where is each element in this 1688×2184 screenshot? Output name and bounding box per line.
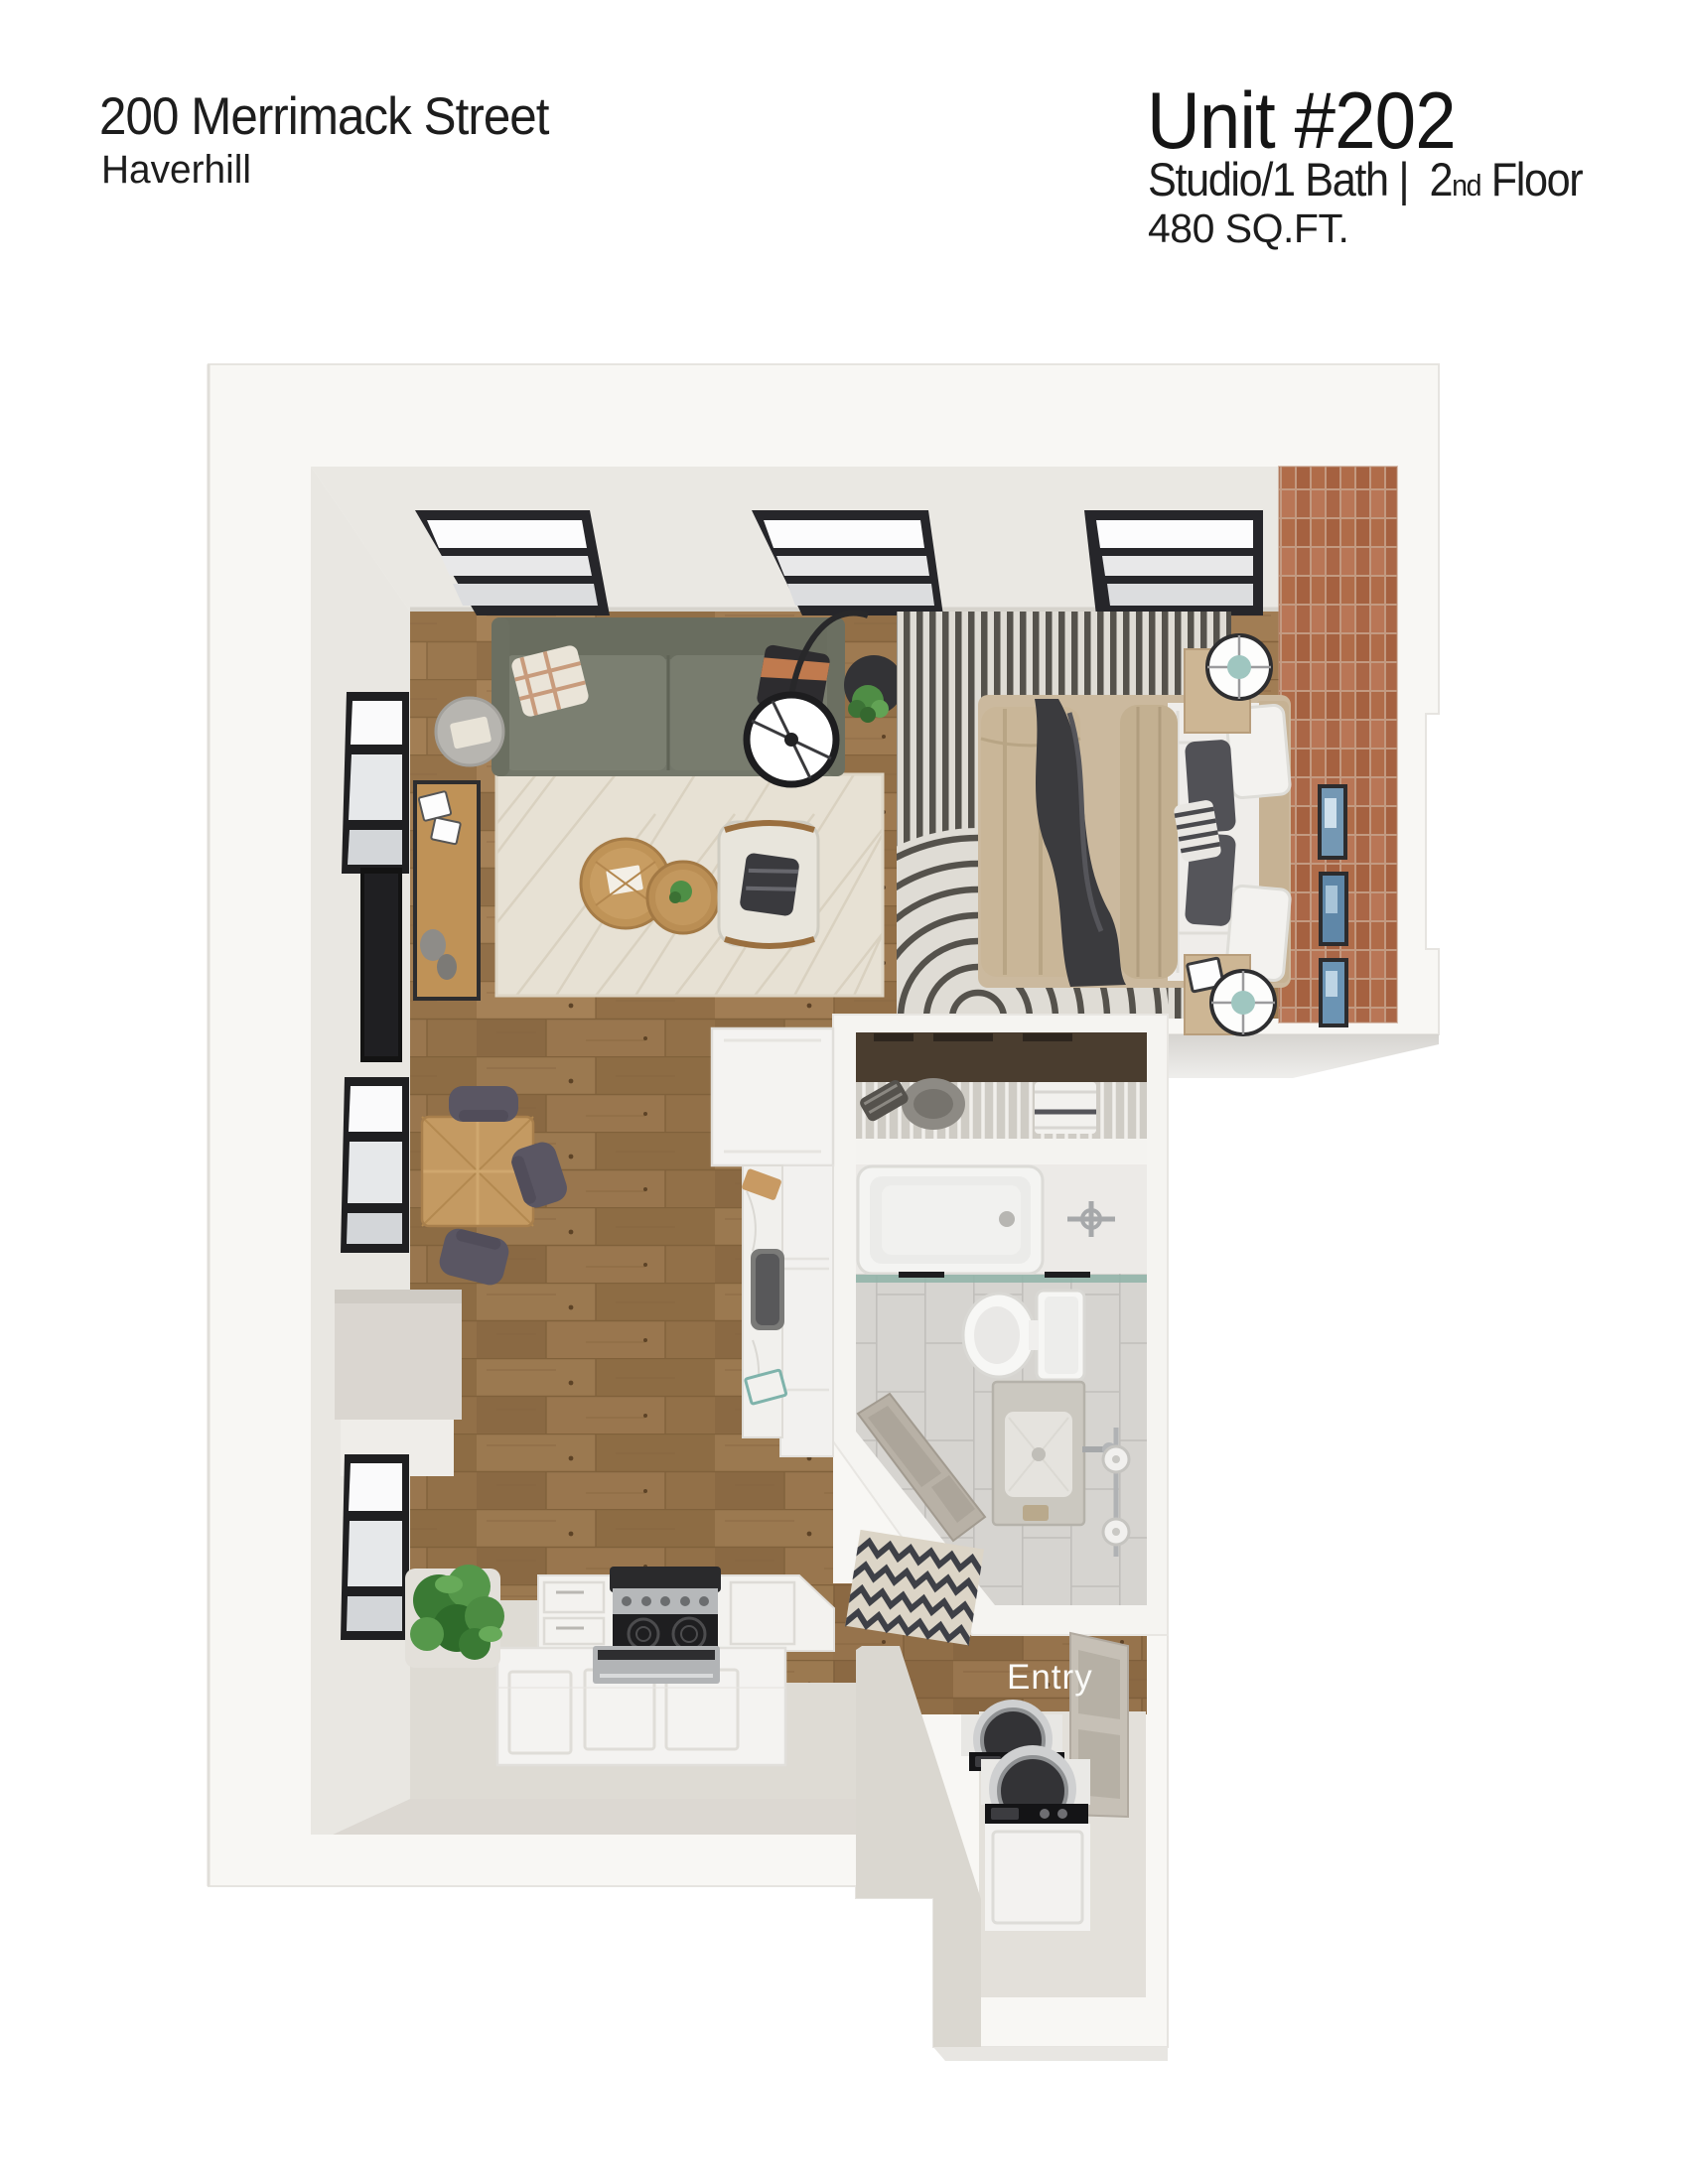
svg-text:Entry: Entry [1007, 1658, 1093, 1697]
